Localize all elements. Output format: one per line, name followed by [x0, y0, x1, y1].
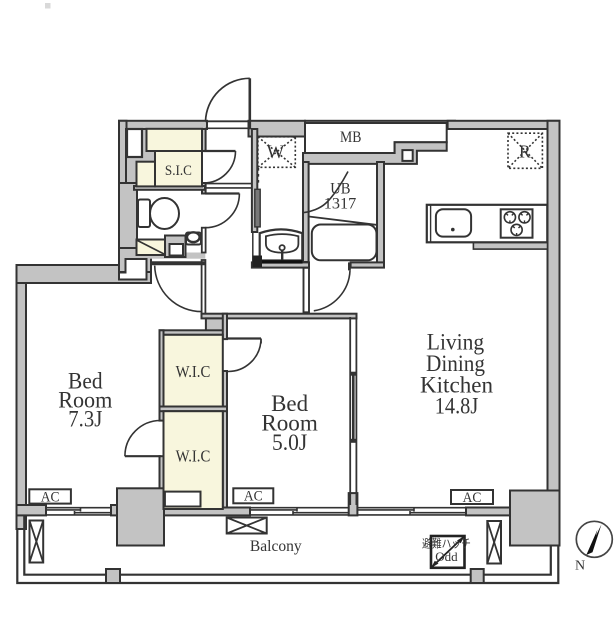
svg-text:AC: AC — [41, 489, 60, 505]
svg-text:AC: AC — [463, 490, 482, 506]
svg-text:R: R — [519, 141, 531, 161]
svg-text:AC: AC — [244, 488, 263, 504]
svg-text:14.8J: 14.8J — [435, 394, 479, 419]
svg-text:W.I.C: W.I.C — [176, 447, 211, 466]
svg-text:W: W — [267, 143, 285, 163]
svg-text:N: N — [575, 559, 585, 574]
svg-text:W.I.C: W.I.C — [176, 362, 211, 381]
svg-text:Balcony: Balcony — [250, 538, 302, 555]
svg-text:Odd: Odd — [435, 549, 458, 564]
svg-text:7.3J: 7.3J — [68, 407, 102, 432]
svg-text:5.0J: 5.0J — [272, 430, 307, 455]
svg-text:1317: 1317 — [324, 196, 357, 213]
svg-text:MB: MB — [340, 129, 361, 146]
svg-text:S.I.C: S.I.C — [165, 163, 192, 179]
